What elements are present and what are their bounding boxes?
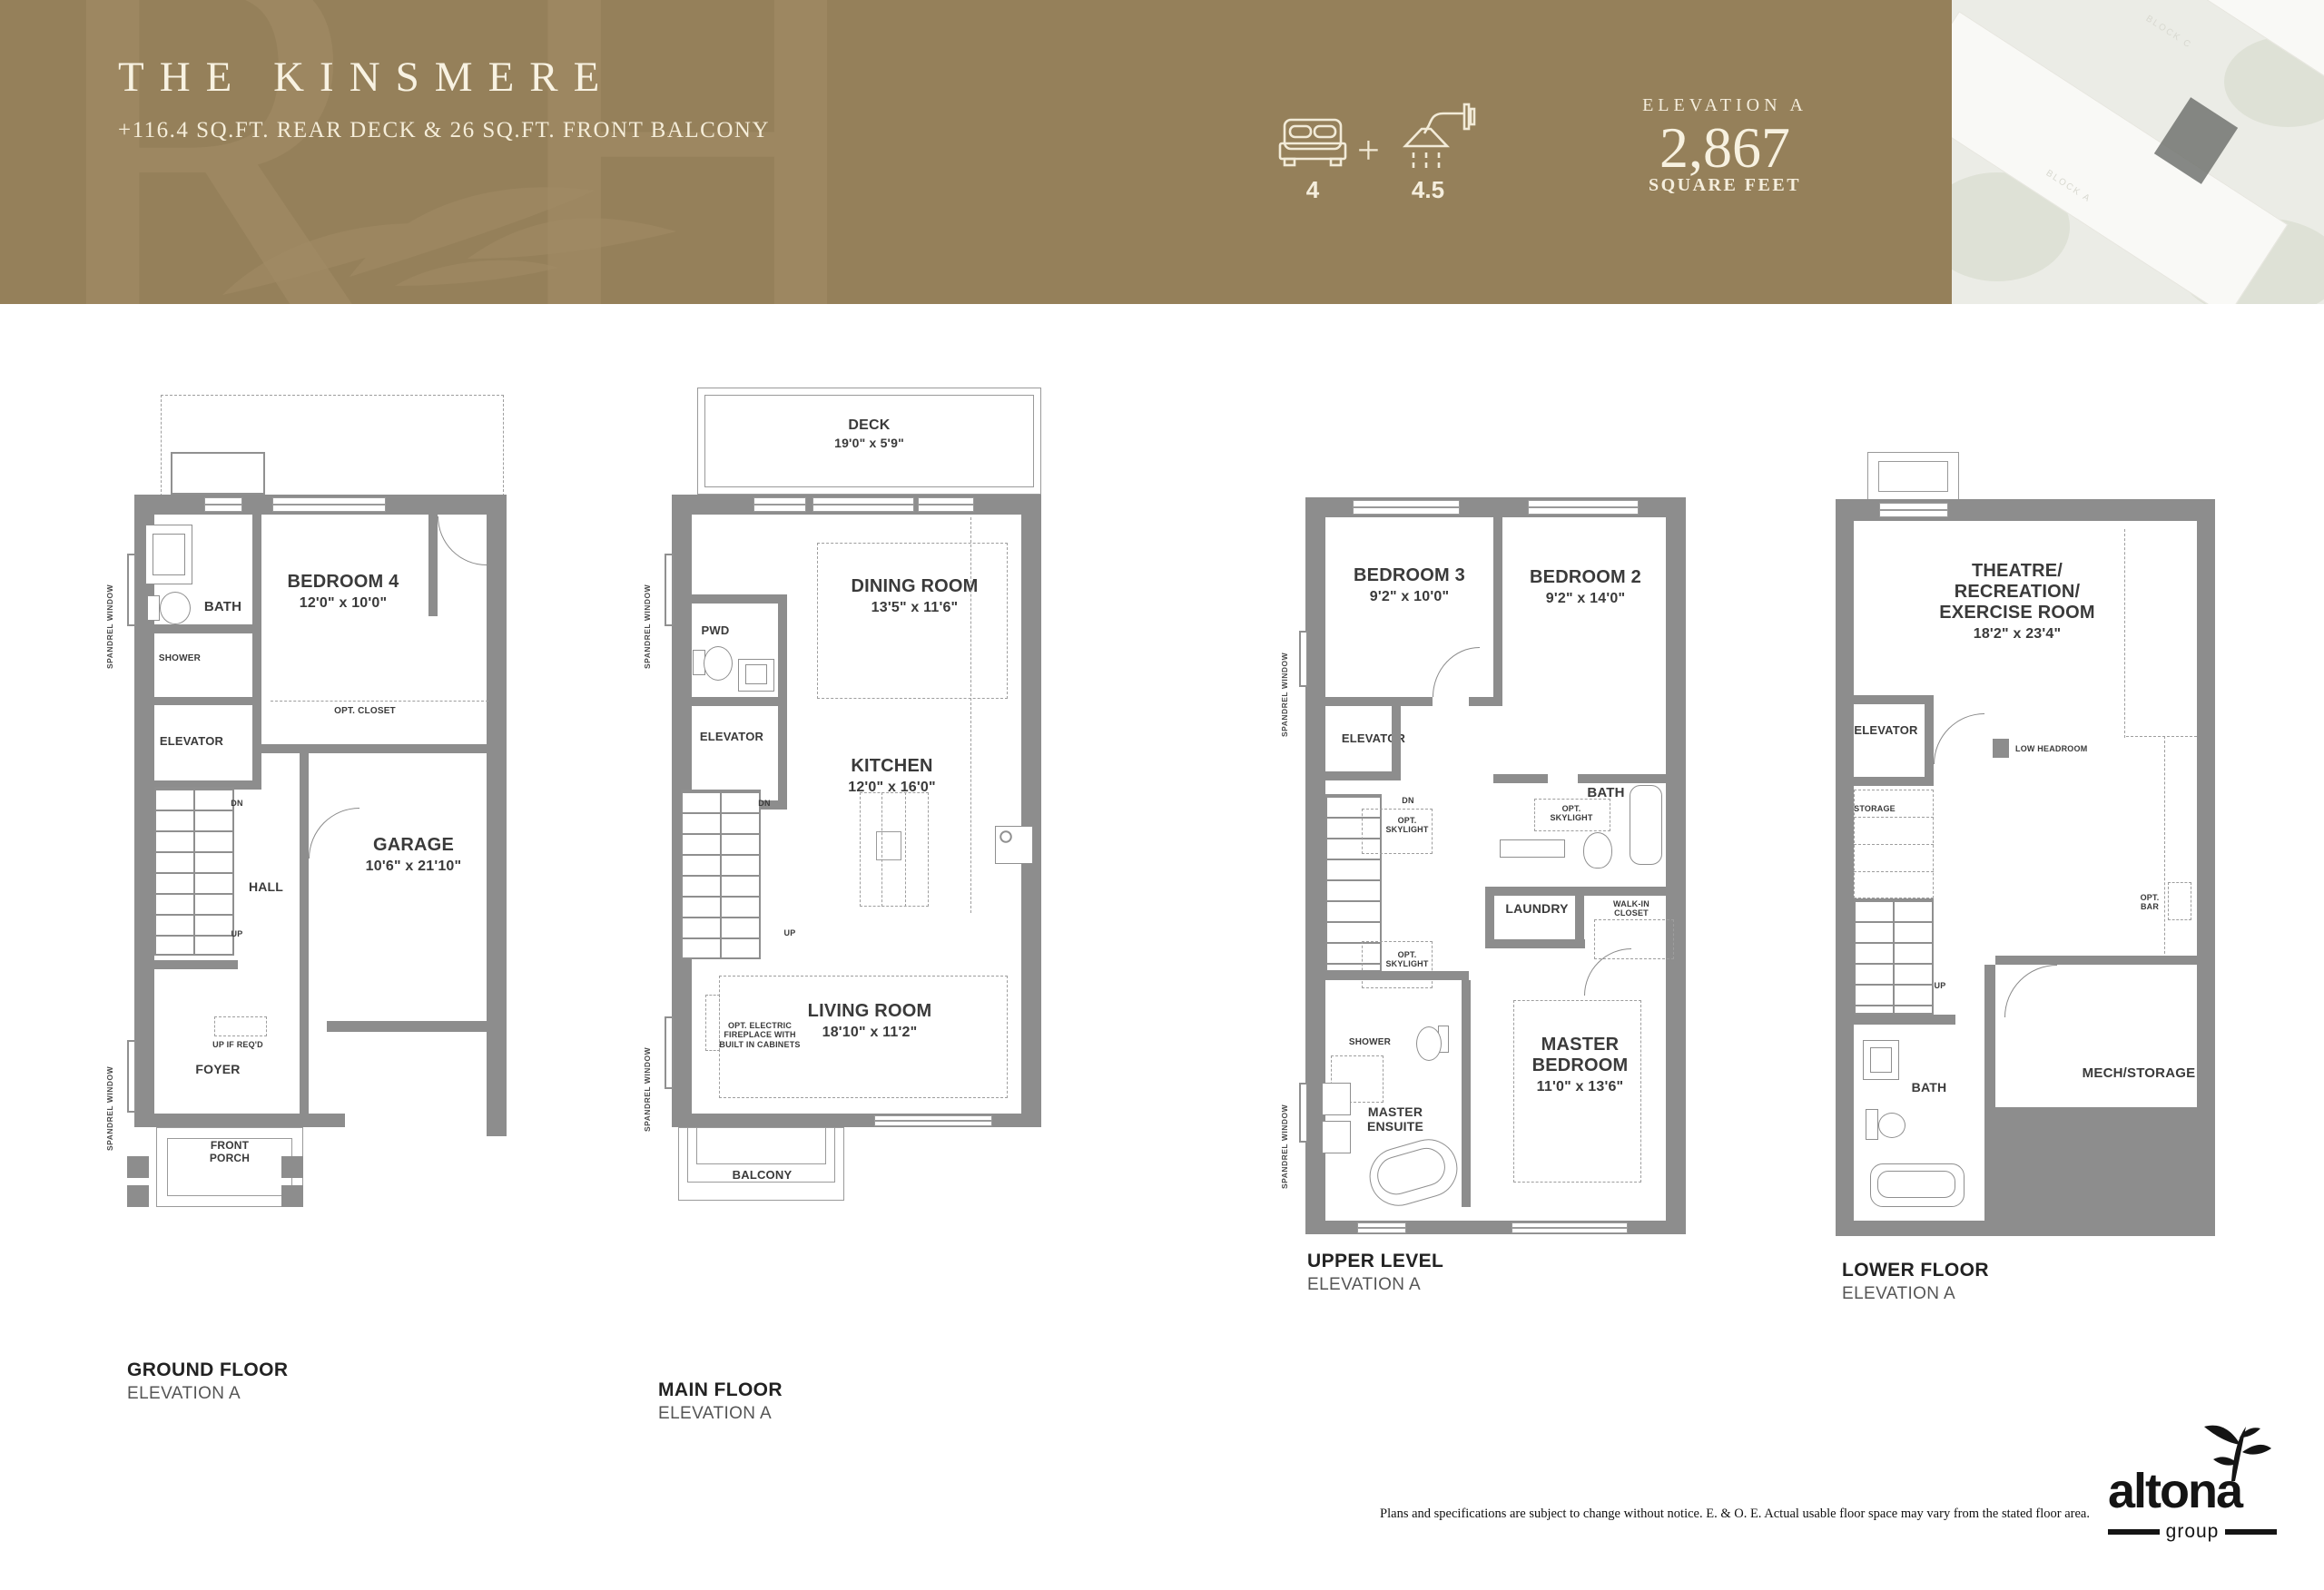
bar-dashed-line [2164,736,2165,963]
ceiling-break-dashed [2126,736,2197,737]
wall [2197,499,2215,1112]
stair-dn-label: DN [1393,796,1423,805]
spandrel-window-bay [665,1016,674,1089]
wall [1469,697,1502,706]
porch-post [127,1156,149,1178]
wall [1305,971,1469,980]
shower-icon [1396,102,1476,176]
island-line [905,792,906,907]
low-headroom-label: LOW HEADROOM [2015,744,2102,753]
door-arc [438,516,487,565]
room-name: BEDROOM 3 [1316,565,1502,586]
disclaimer-text: Plans and specifications are subject to … [1380,1507,2090,1522]
aerial-rendering: BLOCK C BLOCK A [1952,0,2324,304]
room-label-master: MASTER BEDROOM 11'0" x 13'6" [1492,1035,1669,1095]
window [1528,500,1639,515]
room-dim: 13'5" x 11'6" [826,600,1003,616]
room-label-foyer: FOYER [178,1062,258,1076]
wall [487,495,507,1136]
wall [327,1021,487,1032]
logo-group-row: group [2108,1522,2277,1541]
floor-title: UPPER LEVEL [1307,1251,1443,1272]
room-label-theatre: THEATRE/ RECREATION/ EXERCISE ROOM 18'2"… [1937,561,2097,643]
plan-lower-floor: THEATRE/ RECREATION/ EXERCISE ROOM 18'2"… [1836,452,2235,1310]
opt-closet-dashed [271,701,488,702]
plan-ground-floor: OPT. CLOSET BATH SHOWER ELEVATOR BEDROOM… [127,381,517,1420]
room-label-living: LIVING ROOM 18'10" x 11'2" [779,1001,960,1041]
stair-center-line [720,790,722,959]
wall [1836,777,1934,786]
bed-icon [1276,118,1349,171]
room-name: LIVING ROOM [779,1001,960,1022]
wall [778,706,787,810]
room-label-dining: DINING ROOM 13'5" x 11'6" [826,576,1003,616]
wall [1836,499,1854,1236]
window [1879,503,1948,517]
sink-basin [745,664,767,684]
window [204,497,242,512]
toilet-bowl [1878,1113,1905,1138]
room-label-deck: DECK 19'0" x 5'9" [803,417,935,450]
stair-tread-dashed [1854,844,1934,845]
wall [1836,695,1934,704]
spandrel-window-bay [1299,631,1308,687]
floor-title: GROUND FLOOR [127,1359,288,1381]
island-sink [876,831,901,860]
opt-skylight-label: OPT. SKYLIGHT [1382,950,1433,969]
wall [1666,497,1686,1234]
ceiling-break-dashed [2124,529,2125,738]
room-dim: 18'10" x 11'2" [779,1025,960,1041]
tub-inner [1373,1143,1450,1199]
opt-stair-dashed [214,1016,267,1036]
wall [1392,706,1401,780]
aerial-veil [1952,0,2324,304]
plan-main-floor: DECK 19'0" x 5'9" DINING ROOM 13'5" x 11… [658,381,1049,1438]
wall [1493,774,1548,783]
spandrel-window-label: SPANDREL WINDOW [643,1012,652,1166]
spandrel-window-bay [127,1040,136,1113]
wall [778,594,787,706]
sink-basin [153,534,185,575]
room-name: DECK [803,417,935,434]
window-bay [171,452,265,495]
toilet-bowl [1583,832,1612,869]
wall [1836,1015,1955,1025]
wall [1575,896,1584,948]
room-name: THEATRE/ RECREATION/ EXERCISE ROOM [1937,561,2097,623]
wall [153,960,238,969]
stair-up-label: UP [222,929,252,938]
spandrel-window-bay [1299,1083,1308,1143]
porch-post [281,1185,303,1207]
toilet-bowl [1416,1026,1442,1061]
spandrel-window-label: SPANDREL WINDOW [105,549,114,703]
room-name: BEDROOM 4 [243,572,443,593]
header-band: RH THE KINSMERE +116.4 SQ.FT. REAR DECK … [0,0,2324,304]
low-headroom-marker [1993,739,2009,758]
room-label-kitchen: KITCHEN 12'0" x 16'0" [803,756,980,796]
wall [134,624,261,633]
room-label-bedroom2: BEDROOM 2 9'2" x 14'0" [1492,567,1679,607]
opt-skylight-label: OPT. SKYLIGHT [1382,816,1433,835]
stove-fixture [995,826,1033,864]
stair-up-label: UP [1925,981,1955,990]
balcony-outline-inner [696,1127,826,1164]
spandrel-window-label: SPANDREL WINDOW [1280,1074,1289,1219]
logo-bar [2225,1529,2277,1535]
plus-sign: + [1357,127,1380,173]
room-label-pwd: PWD [684,624,747,638]
room-label-ensuite: MASTER ENSUITE [1345,1104,1445,1134]
window [918,497,974,512]
room-dim: 10'6" x 21'10" [320,859,507,875]
room-label-bedroom4: BEDROOM 4 12'0" x 10'0" [243,572,443,612]
room-label-balcony: BALCONY [714,1169,810,1183]
room-dim: 18'2" x 23'4" [1937,626,2097,643]
vanity-sink [1322,1121,1351,1153]
floor-title: LOWER FLOOR [1842,1260,1989,1281]
room-label-shower: SHOWER [143,653,216,664]
spandrel-window-label: SPANDREL WINDOW [1280,622,1289,767]
spandrel-window-label: SPANDREL WINDOW [105,1031,114,1185]
bathtub-fixture [1630,785,1662,865]
room-label-front-porch: FRONT PORCH [200,1140,260,1165]
counter-dashed-line [970,517,971,913]
stair-center-line [1893,898,1895,1015]
room-label-hall: HALL [234,879,298,894]
room-dim: 9'2" x 10'0" [1316,589,1502,605]
fireplace-label: OPT. ELECTRIC FIREPLACE WITH BUILT IN CA… [718,1021,802,1049]
room-dim: 9'2" x 14'0" [1492,591,1679,607]
window [1357,1222,1406,1233]
wall [134,1114,345,1127]
room-label-elevator: ELEVATOR [142,735,241,749]
wall [1485,939,1585,948]
room-name: KITCHEN [803,756,980,777]
elevation-label: ELEVATION A [1630,95,1820,116]
opt-bar-label: OPT. BAR [2135,893,2164,912]
vanity-sink [1322,1083,1351,1115]
room-dim: 12'0" x 10'0" [243,595,443,612]
bathtub-fixture [1870,1163,1965,1207]
wall [1305,771,1401,780]
sink-basin [1870,1047,1892,1073]
porch-post [281,1156,303,1178]
toilet-tank [1866,1109,1878,1140]
room-dim: 11'0" x 13'6" [1492,1079,1669,1095]
plan-upper-level: BEDROOM 3 9'2" x 10'0" BEDROOM 2 9'2" x … [1305,495,1696,1307]
vanity-fixture [1500,839,1565,858]
wall [1984,965,1995,1221]
room-name: GARAGE [320,835,507,856]
room-name: DINING ROOM [826,576,1003,597]
spandrel-window-bay [127,554,136,626]
floor-title: MAIN FLOOR [658,1379,783,1401]
toilet-tank [147,595,160,621]
page-title: THE KINSMERE [118,53,615,102]
room-label-elevator: ELEVATOR [682,731,782,744]
stair-center-line [193,787,195,956]
stair-tread-dashed [1854,871,1934,872]
floor-elevation: ELEVATION A [1307,1275,1421,1295]
porch-post [127,1185,149,1207]
floor-elevation: ELEVATION A [658,1404,772,1424]
shaft-outline-inner [1878,461,1948,492]
room-label-walkin: WALK-IN CLOSET [1605,899,1658,918]
altona-logo: altona group [2108,1434,2280,1534]
room-dim: 19'0" x 5'9" [803,436,935,450]
room-label-shower: SHOWER [1336,1037,1403,1048]
room-label-mech: MECH/STORAGE [2061,1065,2217,1081]
page-subtitle: +116.4 SQ.FT. REAR DECK & 26 SQ.FT. FRON… [118,118,770,143]
window [753,497,806,512]
wall [300,753,309,1127]
opt-skylight-label: OPT. SKYLIGHT [1543,804,1600,823]
dining-dashed [817,543,1008,699]
tub-inner [1877,1171,1955,1198]
opt-closet-label: OPT. CLOSET [301,706,428,717]
room-name: MASTER BEDROOM [1492,1035,1669,1076]
room-label-garage: GARAGE 10'6" x 21'10" [320,835,507,875]
room-label-laundry: LAUNDRY [1492,901,1582,916]
spandrel-window-label: SPANDREL WINDOW [643,549,652,703]
stair-dn-label: DN [749,799,780,808]
beds-count: 4 [1294,176,1332,204]
wall [252,624,261,790]
toilet-bowl [704,646,733,681]
stair-dn-label: DN [222,799,252,808]
wall [672,594,787,604]
area-label: SQUARE FEET [1630,175,1820,196]
spandrel-window-bay [665,554,674,626]
floor-elevation: ELEVATION A [127,1384,241,1404]
room-name: BEDROOM 2 [1492,567,1679,588]
wall [1305,697,1433,706]
wall [1462,980,1471,1207]
floor-elevation: ELEVATION A [1842,1284,1955,1304]
wall [672,697,787,706]
window [812,497,914,512]
wall [134,495,154,1127]
door-arc [1934,713,1984,764]
window [874,1115,992,1126]
baths-count: 4.5 [1405,176,1451,204]
floorplan-sheet: RH THE KINSMERE +116.4 SQ.FT. REAR DECK … [0,0,2324,1590]
window [1512,1222,1628,1233]
logo-name: altona [2108,1467,2241,1516]
door-arc [1433,647,1480,697]
door-arc [2004,965,2057,1017]
wall [1021,495,1041,1127]
wall [1995,956,2215,965]
wall [1836,1221,1995,1236]
wall [134,697,261,705]
room-label-elevator: ELEVATOR [1324,732,1423,746]
window [272,497,386,512]
foundation-mass [1995,1107,2215,1236]
area-value: 2,867 [1611,114,1838,182]
walkin-dashed [1594,919,1674,959]
logo-subname: group [2166,1522,2220,1541]
logo-bar [2108,1529,2160,1535]
up-if-reqd-label: UP IF REQ'D [207,1040,269,1049]
wall [252,744,507,753]
wall [1485,887,1686,896]
stair-up-label: UP [774,928,805,937]
stair-tread-dashed [1854,817,1934,818]
opt-bar-dashed [2168,882,2191,920]
door-arc [1584,948,1631,996]
wall [1578,774,1686,783]
window [1353,500,1460,515]
room-label-bedroom3: BEDROOM 3 9'2" x 10'0" [1316,565,1502,605]
freestanding-tub [1363,1133,1464,1213]
wall [1925,704,1934,786]
room-label-bath: BATH [1901,1080,1957,1094]
room-label-elevator: ELEVATOR [1843,724,1929,738]
